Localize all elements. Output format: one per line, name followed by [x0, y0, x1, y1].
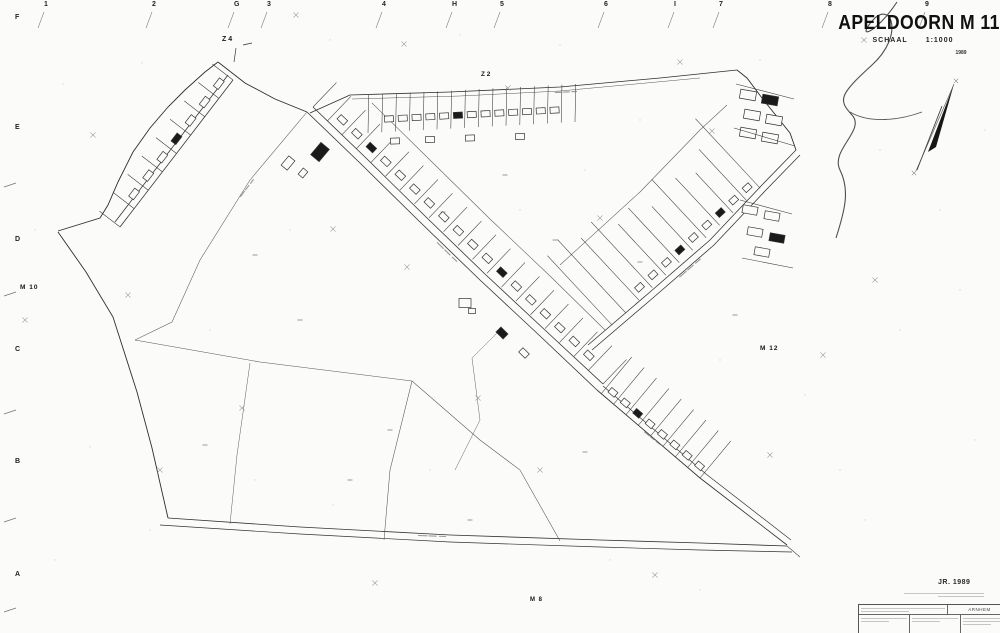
cadastral-map-sheet: 12G34H56I789 FEDCBA Z 4 Z 2 M 10 M 12 M …	[0, 0, 1000, 633]
sheet-title: APELDOORN M 11	[838, 12, 988, 35]
building-footprint	[410, 184, 421, 195]
illegible-text-line	[912, 621, 940, 623]
adjacent-sheet-m8: M 8	[530, 597, 543, 603]
street-name-smudge	[437, 242, 444, 248]
stamp-body-row	[859, 615, 1000, 633]
building-footprint	[633, 408, 643, 418]
parcel-line	[234, 48, 236, 62]
ruler-tick	[446, 12, 452, 28]
scan-squiggle	[850, 112, 922, 120]
parcel-line	[506, 88, 507, 126]
parcel-line	[601, 357, 632, 394]
boundary-line	[350, 70, 737, 95]
parcel-line	[561, 85, 562, 123]
stamp-cell	[859, 615, 910, 633]
north-arrow-icon	[928, 84, 954, 152]
building-footprint	[675, 245, 685, 255]
grid-label-left: A	[15, 571, 20, 578]
building-footprint	[199, 96, 210, 108]
road-edge	[588, 150, 796, 345]
building-footprint	[739, 127, 756, 139]
building-footprint	[747, 227, 763, 237]
building-footprint	[511, 281, 522, 292]
parcel-line	[412, 381, 560, 541]
illegible-text-line	[861, 608, 945, 610]
ruler-tick	[4, 410, 16, 414]
paper-speckle	[899, 329, 900, 330]
adjacent-sheet-z2: Z 2	[481, 71, 490, 78]
building-footprint	[482, 253, 493, 264]
parcel-line	[313, 83, 336, 107]
building-footprint	[398, 115, 407, 121]
ruler-tick	[4, 292, 16, 296]
paper-speckle	[879, 149, 880, 150]
building-footprint	[540, 308, 551, 319]
building-footprint	[742, 205, 758, 215]
building-footprint	[657, 429, 667, 439]
parcel-line	[688, 431, 719, 468]
scale-value: 1:1000	[926, 37, 954, 44]
paper-speckle	[54, 559, 55, 560]
building-footprint	[682, 450, 692, 460]
ruler-tick	[4, 518, 16, 522]
grid-label-top: 6	[604, 1, 608, 8]
building-footprint	[171, 133, 182, 145]
stamp-cell	[961, 615, 1000, 633]
building-footprint	[509, 109, 518, 115]
building-footprint	[395, 170, 406, 181]
building-footprint	[702, 220, 712, 230]
paper-speckle	[719, 359, 720, 360]
parcel-line	[455, 330, 500, 470]
ruler-tick	[376, 12, 382, 28]
building-footprint	[426, 113, 435, 119]
building-footprint	[569, 336, 580, 347]
paper-speckle	[289, 229, 290, 230]
building-footprint	[729, 195, 739, 205]
building-footprint	[467, 111, 476, 117]
adjacent-sheet-m10: M 10	[20, 284, 38, 291]
boundary-line	[58, 62, 218, 231]
paper-speckle	[584, 169, 585, 170]
paper-speckle	[141, 62, 142, 63]
building-footprint	[381, 156, 392, 167]
building-footprint	[635, 282, 645, 292]
parcel-line	[382, 94, 383, 132]
paper-speckle	[839, 469, 840, 470]
parcel-line	[520, 87, 521, 125]
building-footprint	[311, 142, 330, 161]
building-footprint	[495, 110, 504, 116]
building-footprint	[453, 225, 464, 236]
ruler-tick	[228, 12, 234, 28]
parcel-line	[628, 208, 679, 263]
adjacent-sheet-z4: Z 4	[222, 36, 232, 43]
parcel-line	[243, 43, 252, 45]
street-name-smudge	[418, 536, 446, 537]
grid-label-left: E	[15, 124, 20, 131]
ruler-tick	[261, 12, 267, 28]
street-name-smudge	[555, 91, 577, 92]
sheet-title-block: APELDOORN M 11 SCHAAL 1:1000 1989	[828, 12, 998, 56]
illegible-text-line	[912, 618, 958, 620]
building-footprint	[670, 440, 680, 450]
grid-label-top: G	[234, 1, 239, 8]
boundary-line	[218, 62, 307, 112]
adjacent-sheet-m12: M 12	[760, 345, 778, 352]
paper-speckle	[329, 39, 330, 40]
parcel-line	[423, 92, 424, 130]
building-footprint	[459, 299, 471, 308]
grid-label-left: B	[15, 458, 20, 465]
illegible-text-line	[963, 624, 991, 626]
road-edge	[307, 112, 597, 390]
building-footprint	[440, 113, 449, 119]
building-footprint	[497, 267, 508, 278]
stamp-header-row: ARNHEM	[859, 605, 1000, 615]
paper-speckle	[759, 59, 760, 60]
building-footprint	[769, 233, 785, 243]
ruler-tick	[4, 608, 16, 612]
paper-speckle	[34, 229, 35, 230]
scale-label: SCHAAL	[873, 37, 908, 44]
building-footprint	[645, 419, 655, 429]
building-footprint	[453, 112, 462, 118]
building-footprint	[743, 109, 760, 121]
paper-speckle	[89, 446, 90, 447]
building-footprint	[425, 136, 434, 142]
illegible-text-line	[861, 611, 909, 613]
grid-label-top: H	[452, 1, 457, 8]
parcel-line	[135, 112, 307, 340]
parcel-line	[437, 91, 438, 129]
building-footprint	[661, 257, 671, 267]
paper-speckle	[959, 289, 960, 290]
sheet-scale: SCHAAL 1:1000	[828, 37, 998, 44]
building-footprint	[754, 247, 770, 257]
stamp-cell	[910, 615, 961, 633]
building-footprint	[761, 132, 778, 144]
parcel-line	[409, 93, 410, 131]
street-name-smudge	[250, 179, 253, 183]
street-name-smudge	[437, 242, 457, 261]
parcel-line	[230, 363, 250, 524]
street-name-smudge	[679, 259, 700, 277]
map-linework	[0, 0, 1000, 633]
illegible-text-line	[904, 593, 984, 595]
paper-speckle	[519, 209, 520, 210]
building-footprint	[352, 128, 363, 139]
street-name-smudge	[695, 259, 700, 264]
sheet-year: 1989	[924, 50, 998, 56]
parcel-line	[603, 360, 626, 384]
grid-label-top: 3	[267, 1, 271, 8]
building-footprint	[620, 398, 630, 408]
road-edge	[597, 390, 787, 545]
ruler-tick	[598, 12, 604, 28]
building-footprint	[584, 350, 595, 361]
ruler-tick	[494, 12, 500, 28]
paper-speckle	[639, 119, 640, 120]
parcel-line	[212, 64, 233, 80]
building-footprint	[765, 114, 782, 126]
parcel-line	[613, 368, 644, 405]
building-footprint	[469, 309, 476, 314]
grid-label-top: 4	[382, 1, 386, 8]
parcel-line	[651, 399, 682, 436]
parcel-line	[135, 340, 412, 381]
road-edge	[160, 525, 792, 552]
street-name-smudge	[240, 179, 253, 197]
paper-speckle	[62, 83, 63, 84]
paper-speckle	[429, 469, 430, 470]
building-footprint	[337, 115, 348, 126]
building-footprint	[481, 111, 490, 117]
building-footprint	[608, 387, 618, 397]
parcel-line	[372, 103, 605, 330]
paper-speckle	[459, 34, 460, 35]
building-footprint	[742, 183, 752, 193]
building-footprint	[739, 89, 756, 101]
parcel-line	[742, 258, 793, 268]
illegible-text-line	[963, 618, 1000, 620]
building-footprint	[281, 156, 295, 170]
building-footprint	[439, 212, 450, 223]
building-footprint	[522, 108, 531, 114]
ruler-tick	[668, 12, 674, 28]
building-footprint	[555, 322, 566, 333]
grid-label-top: 5	[500, 1, 504, 8]
building-footprint	[390, 138, 399, 144]
paper-speckle	[864, 519, 865, 520]
building-footprint	[143, 170, 154, 182]
parcel-line	[626, 378, 657, 415]
paper-speckle	[939, 209, 940, 210]
boundary-line	[58, 232, 168, 518]
paper-speckle	[209, 329, 210, 330]
building-footprint	[157, 151, 168, 163]
illegible-text-line	[938, 596, 984, 598]
grid-label-top: 1	[44, 1, 48, 8]
ruler-tick	[4, 183, 16, 187]
road-edge	[115, 75, 228, 222]
parcel-line	[492, 88, 493, 126]
building-footprint	[761, 94, 778, 106]
parcel-line	[396, 94, 397, 132]
paper-speckle	[332, 504, 333, 505]
parcel-line	[547, 85, 548, 123]
building-footprint	[213, 78, 224, 90]
paper-speckle	[149, 529, 150, 530]
parcel-line	[675, 178, 719, 225]
building-footprint	[526, 295, 537, 306]
parcel-line	[700, 441, 731, 478]
parcel-line	[696, 173, 733, 213]
illegible-text-line	[861, 618, 907, 620]
building-footprint	[764, 211, 780, 221]
parcel-line	[581, 238, 639, 300]
paper-speckle	[559, 44, 560, 45]
grid-label-top: 9	[925, 1, 929, 8]
building-footprint	[185, 115, 196, 127]
parcel-line	[368, 95, 369, 133]
paper-speckle	[804, 394, 805, 395]
paper-speckle	[254, 479, 255, 480]
parcel-line	[384, 381, 412, 540]
building-footprint	[496, 327, 508, 339]
building-footprint	[129, 188, 140, 200]
parcel-line	[534, 86, 535, 124]
journal-subnote	[902, 591, 986, 599]
paper-speckle	[984, 129, 985, 130]
journal-note: JR. 1989	[938, 579, 970, 586]
parcel-line	[638, 389, 669, 426]
paper-speckle	[974, 439, 975, 440]
building-footprint	[465, 135, 474, 141]
kadaster-stamp-box: ARNHEM	[858, 604, 1000, 633]
building-footprint	[424, 198, 435, 209]
ruler-tick	[146, 12, 152, 28]
paper-speckle	[609, 559, 610, 560]
parcel-line	[591, 222, 652, 288]
building-footprint	[519, 348, 530, 359]
illegible-text-line	[861, 621, 889, 623]
ruler-tick	[713, 12, 719, 28]
parcel-line	[652, 179, 706, 237]
building-footprint	[536, 108, 545, 114]
building-footprint	[550, 107, 559, 113]
grid-label-left: C	[15, 346, 20, 353]
building-footprint	[384, 116, 393, 122]
grid-label-top: 7	[719, 1, 723, 8]
grid-label-top: I	[674, 1, 676, 8]
stamp-header-text	[859, 605, 948, 614]
building-footprint	[366, 142, 377, 153]
parcel-line	[675, 420, 706, 457]
parcel-line	[560, 105, 727, 265]
road-edge	[168, 518, 787, 546]
grid-label-left: F	[15, 14, 19, 21]
parcel-line	[652, 206, 693, 250]
building-footprint	[688, 233, 698, 243]
parcel-line	[787, 546, 800, 557]
grid-label-top: 2	[152, 1, 156, 8]
grid-label-top: 8	[828, 1, 832, 8]
building-footprint	[298, 168, 308, 178]
parcel-line	[663, 410, 694, 447]
building-footprint	[412, 114, 421, 120]
parcel-line	[557, 240, 625, 313]
grid-label-left: D	[15, 236, 20, 243]
building-footprint	[695, 461, 705, 471]
parcel-line	[699, 149, 747, 200]
street-name-smudge	[245, 185, 249, 190]
ruler-tick	[38, 12, 44, 28]
illegible-text-line	[963, 621, 1000, 623]
paper-speckle	[699, 589, 700, 590]
parcel-line	[618, 224, 666, 275]
parcel-line	[547, 256, 612, 325]
building-footprint	[715, 208, 725, 218]
building-footprint	[468, 239, 479, 250]
building-footprint	[648, 270, 658, 280]
building-footprint	[515, 133, 524, 139]
stamp-office: ARNHEM	[948, 605, 1000, 614]
